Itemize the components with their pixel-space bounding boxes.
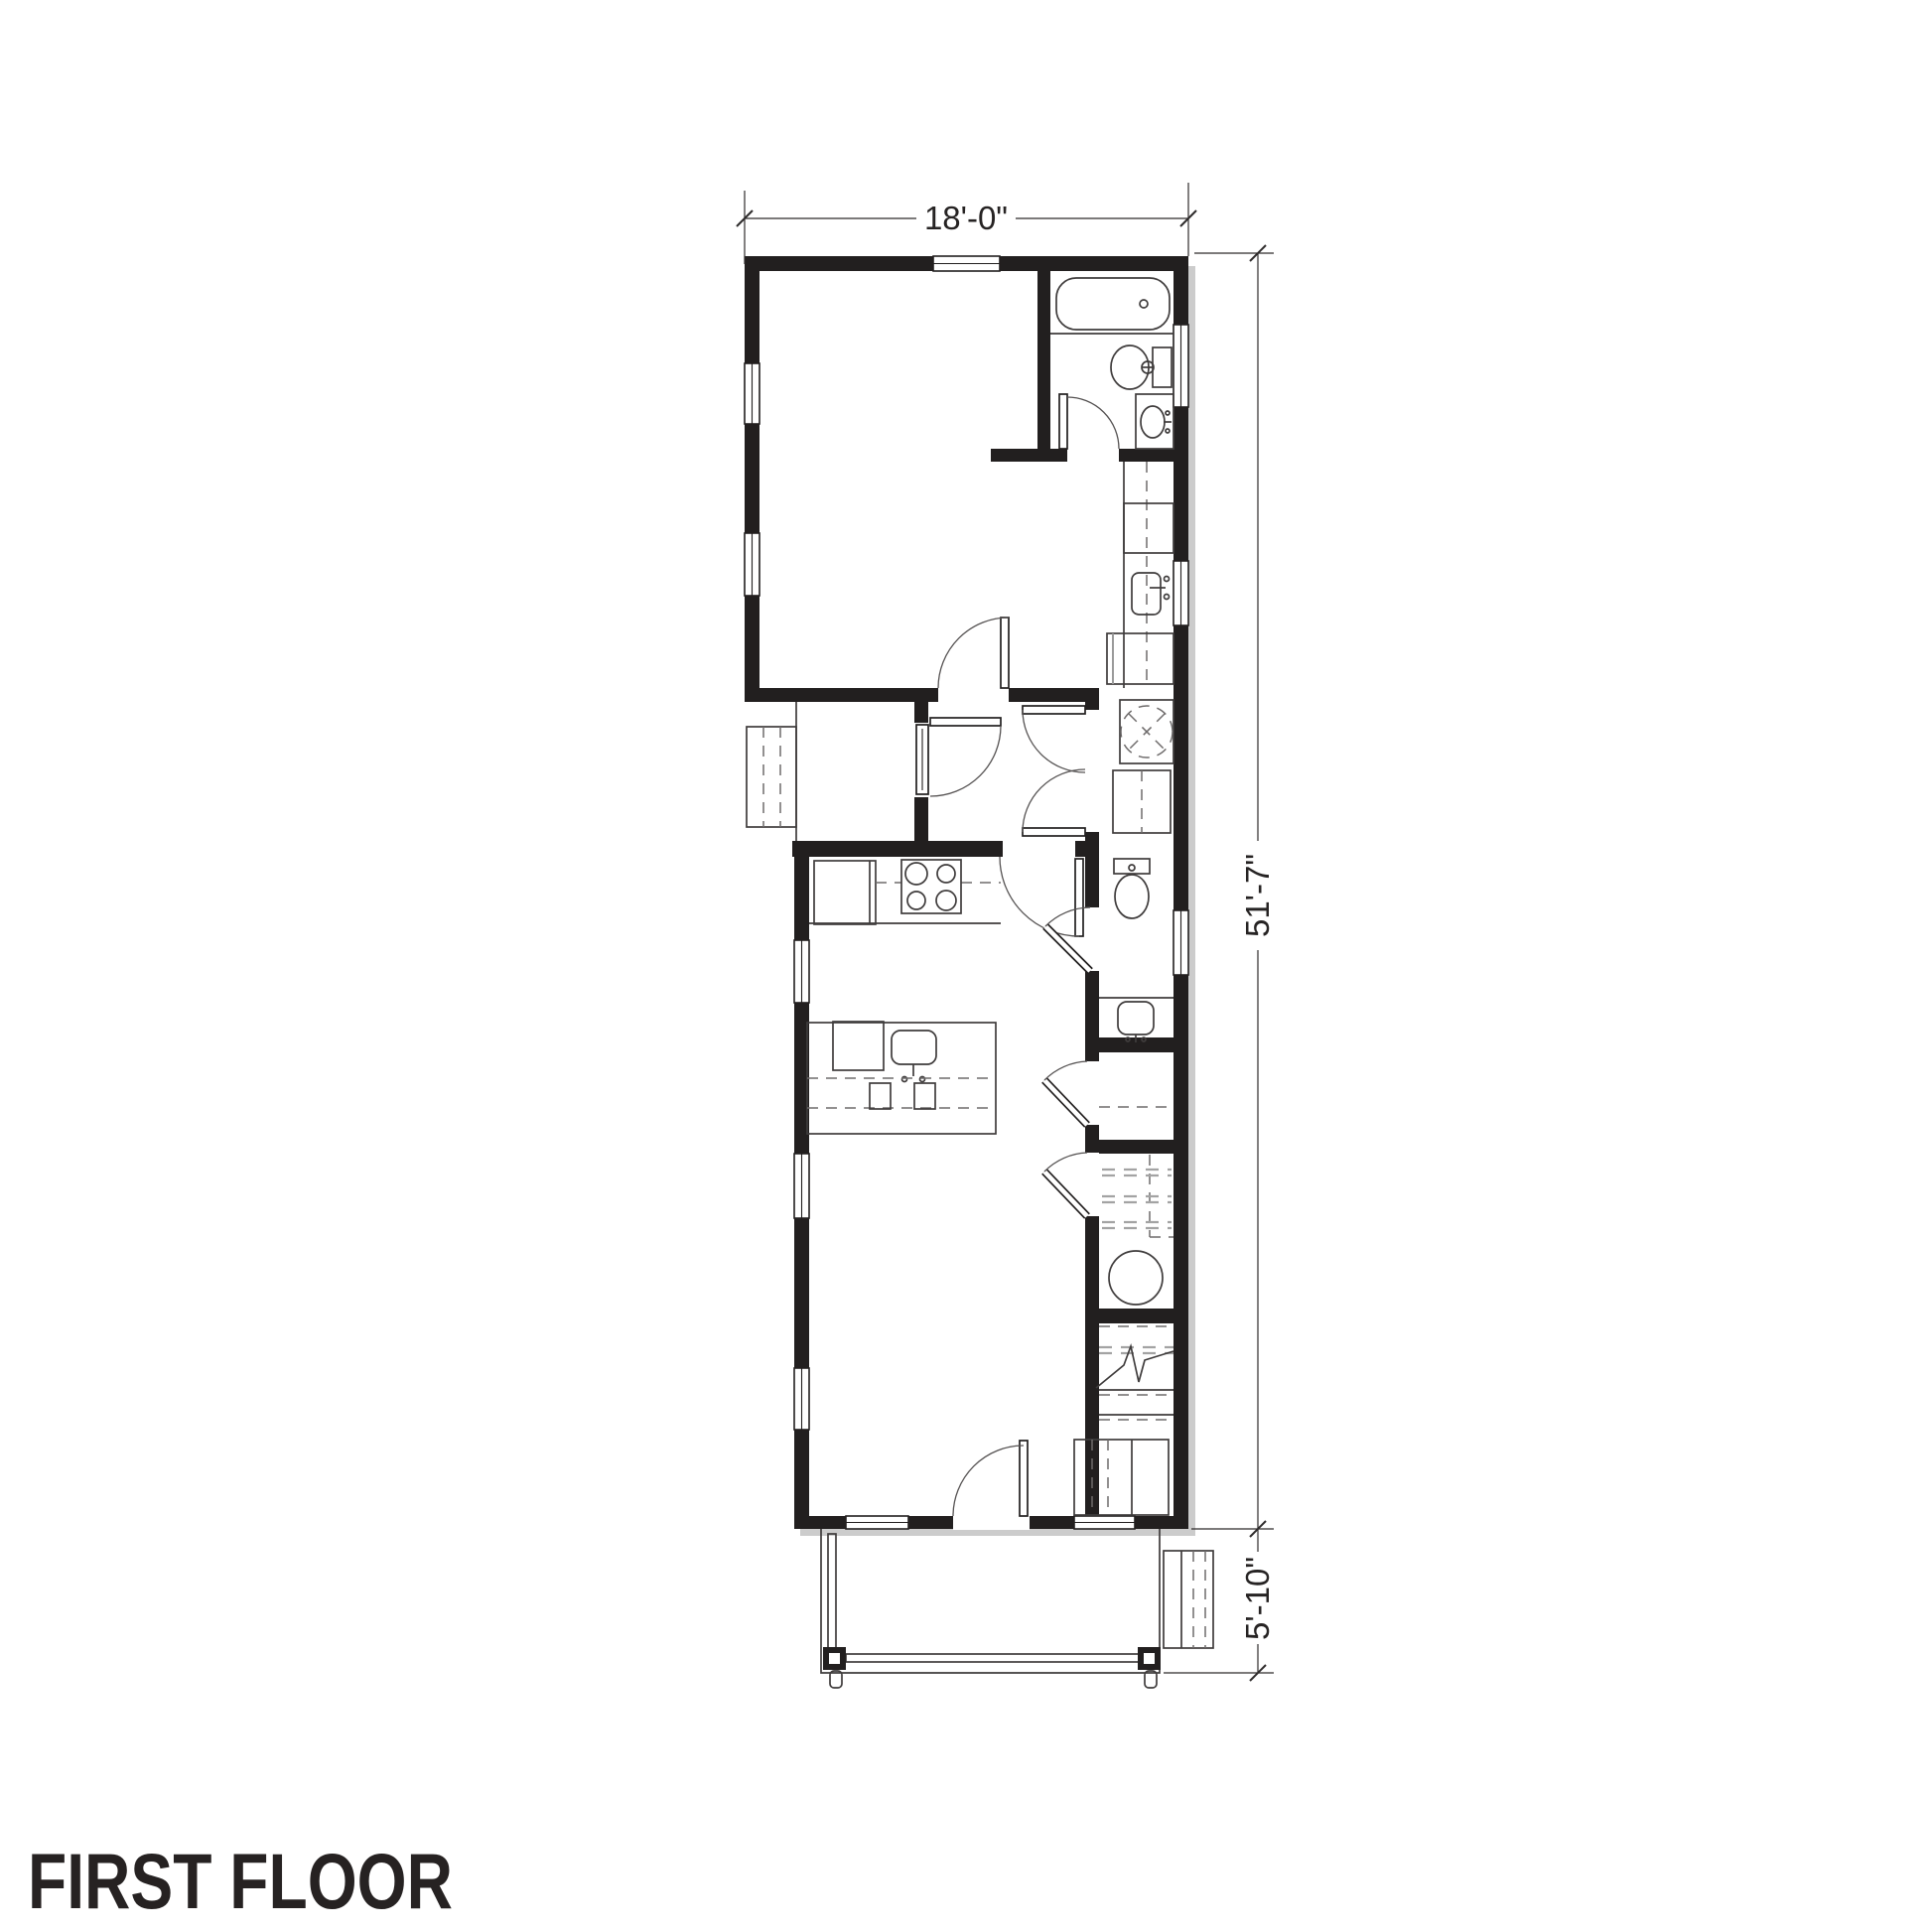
- side-door: [916, 718, 1001, 796]
- half-bath: [1099, 859, 1173, 1042]
- bathroom-door: [1059, 394, 1119, 449]
- range-cooktop: [901, 860, 961, 913]
- laundry-double-doors: [1023, 706, 1085, 836]
- utility-sink: [1132, 573, 1170, 615]
- dryer: [1113, 770, 1171, 833]
- refrigerator: [814, 861, 876, 924]
- window-bathroom-right: [1173, 325, 1188, 407]
- wire-shelves: [1102, 1170, 1172, 1228]
- walls: [745, 256, 1188, 1529]
- halfbath-south-wall: [1095, 1037, 1173, 1052]
- dimension-porch: 5'-10": [1164, 1529, 1276, 1681]
- window-living-front-2: [1074, 1516, 1135, 1529]
- side-door-jamb-upper: [914, 700, 928, 723]
- side-door-jamb-lower: [914, 797, 928, 843]
- window-living-front-1: [846, 1516, 908, 1529]
- front-door: [953, 1441, 1028, 1516]
- porch-post: [1138, 1647, 1161, 1688]
- utility-counter: [1107, 462, 1173, 688]
- depth-dimension-label: 51'-7": [1239, 854, 1276, 937]
- front-porch: [821, 1529, 1213, 1688]
- kitchen: [807, 860, 1001, 1134]
- left-wall-upper: [745, 256, 759, 702]
- window-utility-right: [1173, 561, 1188, 625]
- width-dimension-label: 18'-0": [924, 200, 1008, 236]
- porch-railing-front: [846, 1654, 1140, 1662]
- closets: [1099, 1107, 1173, 1305]
- island-sink: [892, 1031, 936, 1082]
- washer: [1120, 700, 1173, 763]
- island-stool: [914, 1083, 935, 1109]
- window-bedroom-left-2: [745, 533, 759, 596]
- windows: [745, 256, 1188, 1529]
- island-stool: [870, 1083, 891, 1109]
- side-steps: [747, 727, 796, 827]
- window-halfbath-right: [1173, 910, 1188, 975]
- kitchen-island: [807, 1022, 996, 1134]
- window-living-left-1: [794, 1154, 809, 1218]
- window-bedroom-left-1: [745, 363, 759, 424]
- side-entry: [747, 702, 1001, 841]
- bedroom-south-wall: [745, 688, 1099, 702]
- vanity-sink: [1136, 394, 1173, 449]
- halfbath-toilet: [1114, 859, 1150, 918]
- sheet-title: FIRST FLOOR: [28, 1837, 453, 1925]
- window-kitchen-left: [794, 940, 809, 1003]
- water-heater: [1109, 1251, 1163, 1305]
- kitchen-door: [1000, 857, 1083, 936]
- bathtub: [1056, 278, 1170, 330]
- closet-divider-wall: [1095, 1140, 1173, 1154]
- window-bedroom-back: [933, 256, 1000, 271]
- toilet: [1111, 345, 1172, 389]
- mech-closet-door: [1044, 1153, 1087, 1216]
- tub-drain: [1140, 300, 1148, 308]
- window-living-left-2: [794, 1368, 809, 1430]
- dimension-depth: 51'-7": [1191, 245, 1276, 1537]
- porch-post: [823, 1647, 846, 1688]
- base-cabinet: [1124, 503, 1173, 553]
- stair-head-wall: [1085, 1309, 1174, 1323]
- dimension-width: 18'-0": [737, 183, 1196, 264]
- porch-railing-left: [828, 1534, 836, 1651]
- porch-steps: [1164, 1551, 1213, 1648]
- right-wall: [1173, 256, 1188, 1529]
- floor-plan-drawing: 18'-0" 51'-7" 5'-10" FIRST FLOOR: [0, 0, 1932, 1932]
- bedroom-door: [938, 618, 1009, 688]
- porch-dimension-label: 5'-10": [1239, 1557, 1276, 1640]
- hall-closet-door: [1044, 1061, 1087, 1125]
- utility-appliance: [1107, 633, 1173, 684]
- dishwasher: [833, 1022, 884, 1070]
- halfbath-sink: [1099, 998, 1173, 1042]
- floor-plan-sheet: 18'-0" 51'-7" 5'-10" FIRST FLOOR: [0, 0, 1932, 1932]
- bedroom-bath-wall: [1037, 271, 1050, 452]
- porch-deck-outline: [821, 1529, 1160, 1673]
